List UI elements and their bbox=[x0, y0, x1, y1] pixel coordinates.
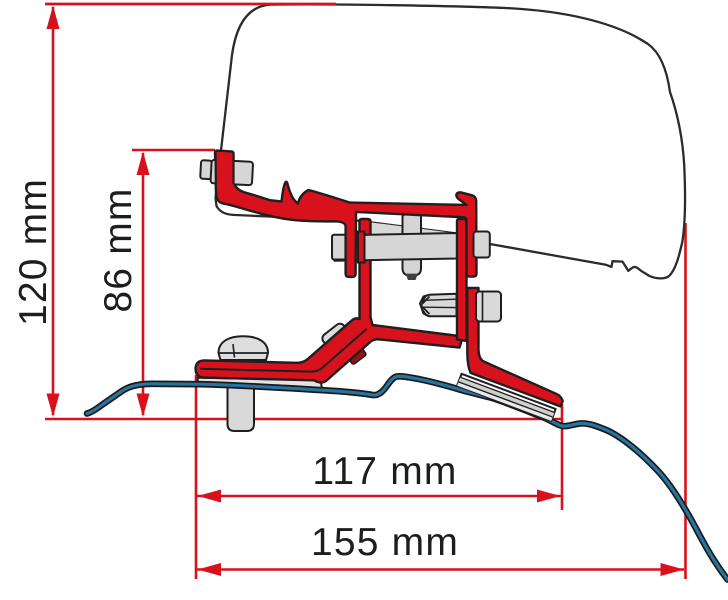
svg-text:117 mm: 117 mm bbox=[312, 450, 457, 493]
svg-text:86 mm: 86 mm bbox=[97, 187, 140, 312]
svg-text:120 mm: 120 mm bbox=[12, 178, 55, 326]
svg-text:155 mm: 155 mm bbox=[311, 521, 459, 564]
